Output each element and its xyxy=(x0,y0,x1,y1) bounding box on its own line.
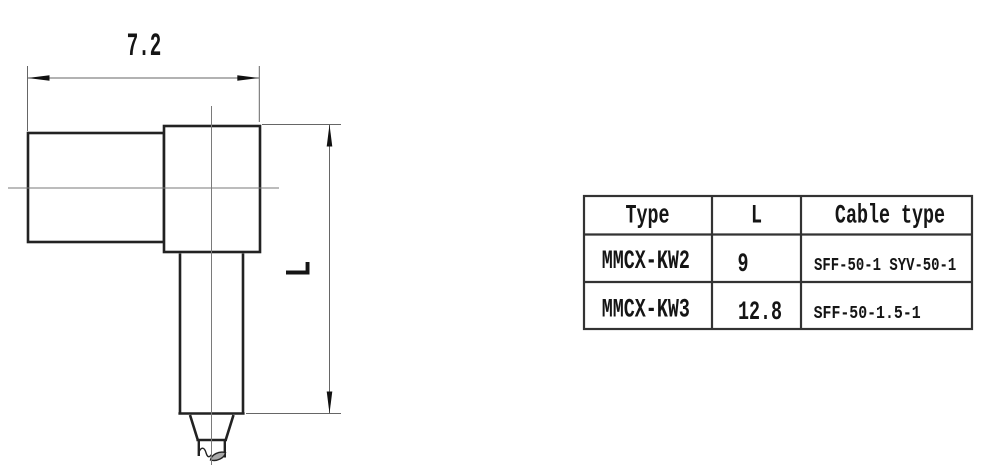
svg-text:9: 9 xyxy=(738,249,749,279)
svg-text:Type: Type xyxy=(625,200,669,230)
svg-text:12.8: 12.8 xyxy=(738,297,782,327)
svg-text:7.2: 7.2 xyxy=(127,28,162,64)
svg-text:SFF-50-1 SYV-50-1: SFF-50-1 SYV-50-1 xyxy=(814,254,956,275)
svg-text:MMCX-KW3: MMCX-KW3 xyxy=(602,294,690,324)
svg-text:SFF-50-1.5-1: SFF-50-1.5-1 xyxy=(814,304,921,325)
svg-text:L: L xyxy=(281,261,321,278)
svg-text:L: L xyxy=(751,200,762,230)
svg-text:MMCX-KW2: MMCX-KW2 xyxy=(602,246,690,276)
svg-text:Cable type: Cable type xyxy=(835,200,945,230)
